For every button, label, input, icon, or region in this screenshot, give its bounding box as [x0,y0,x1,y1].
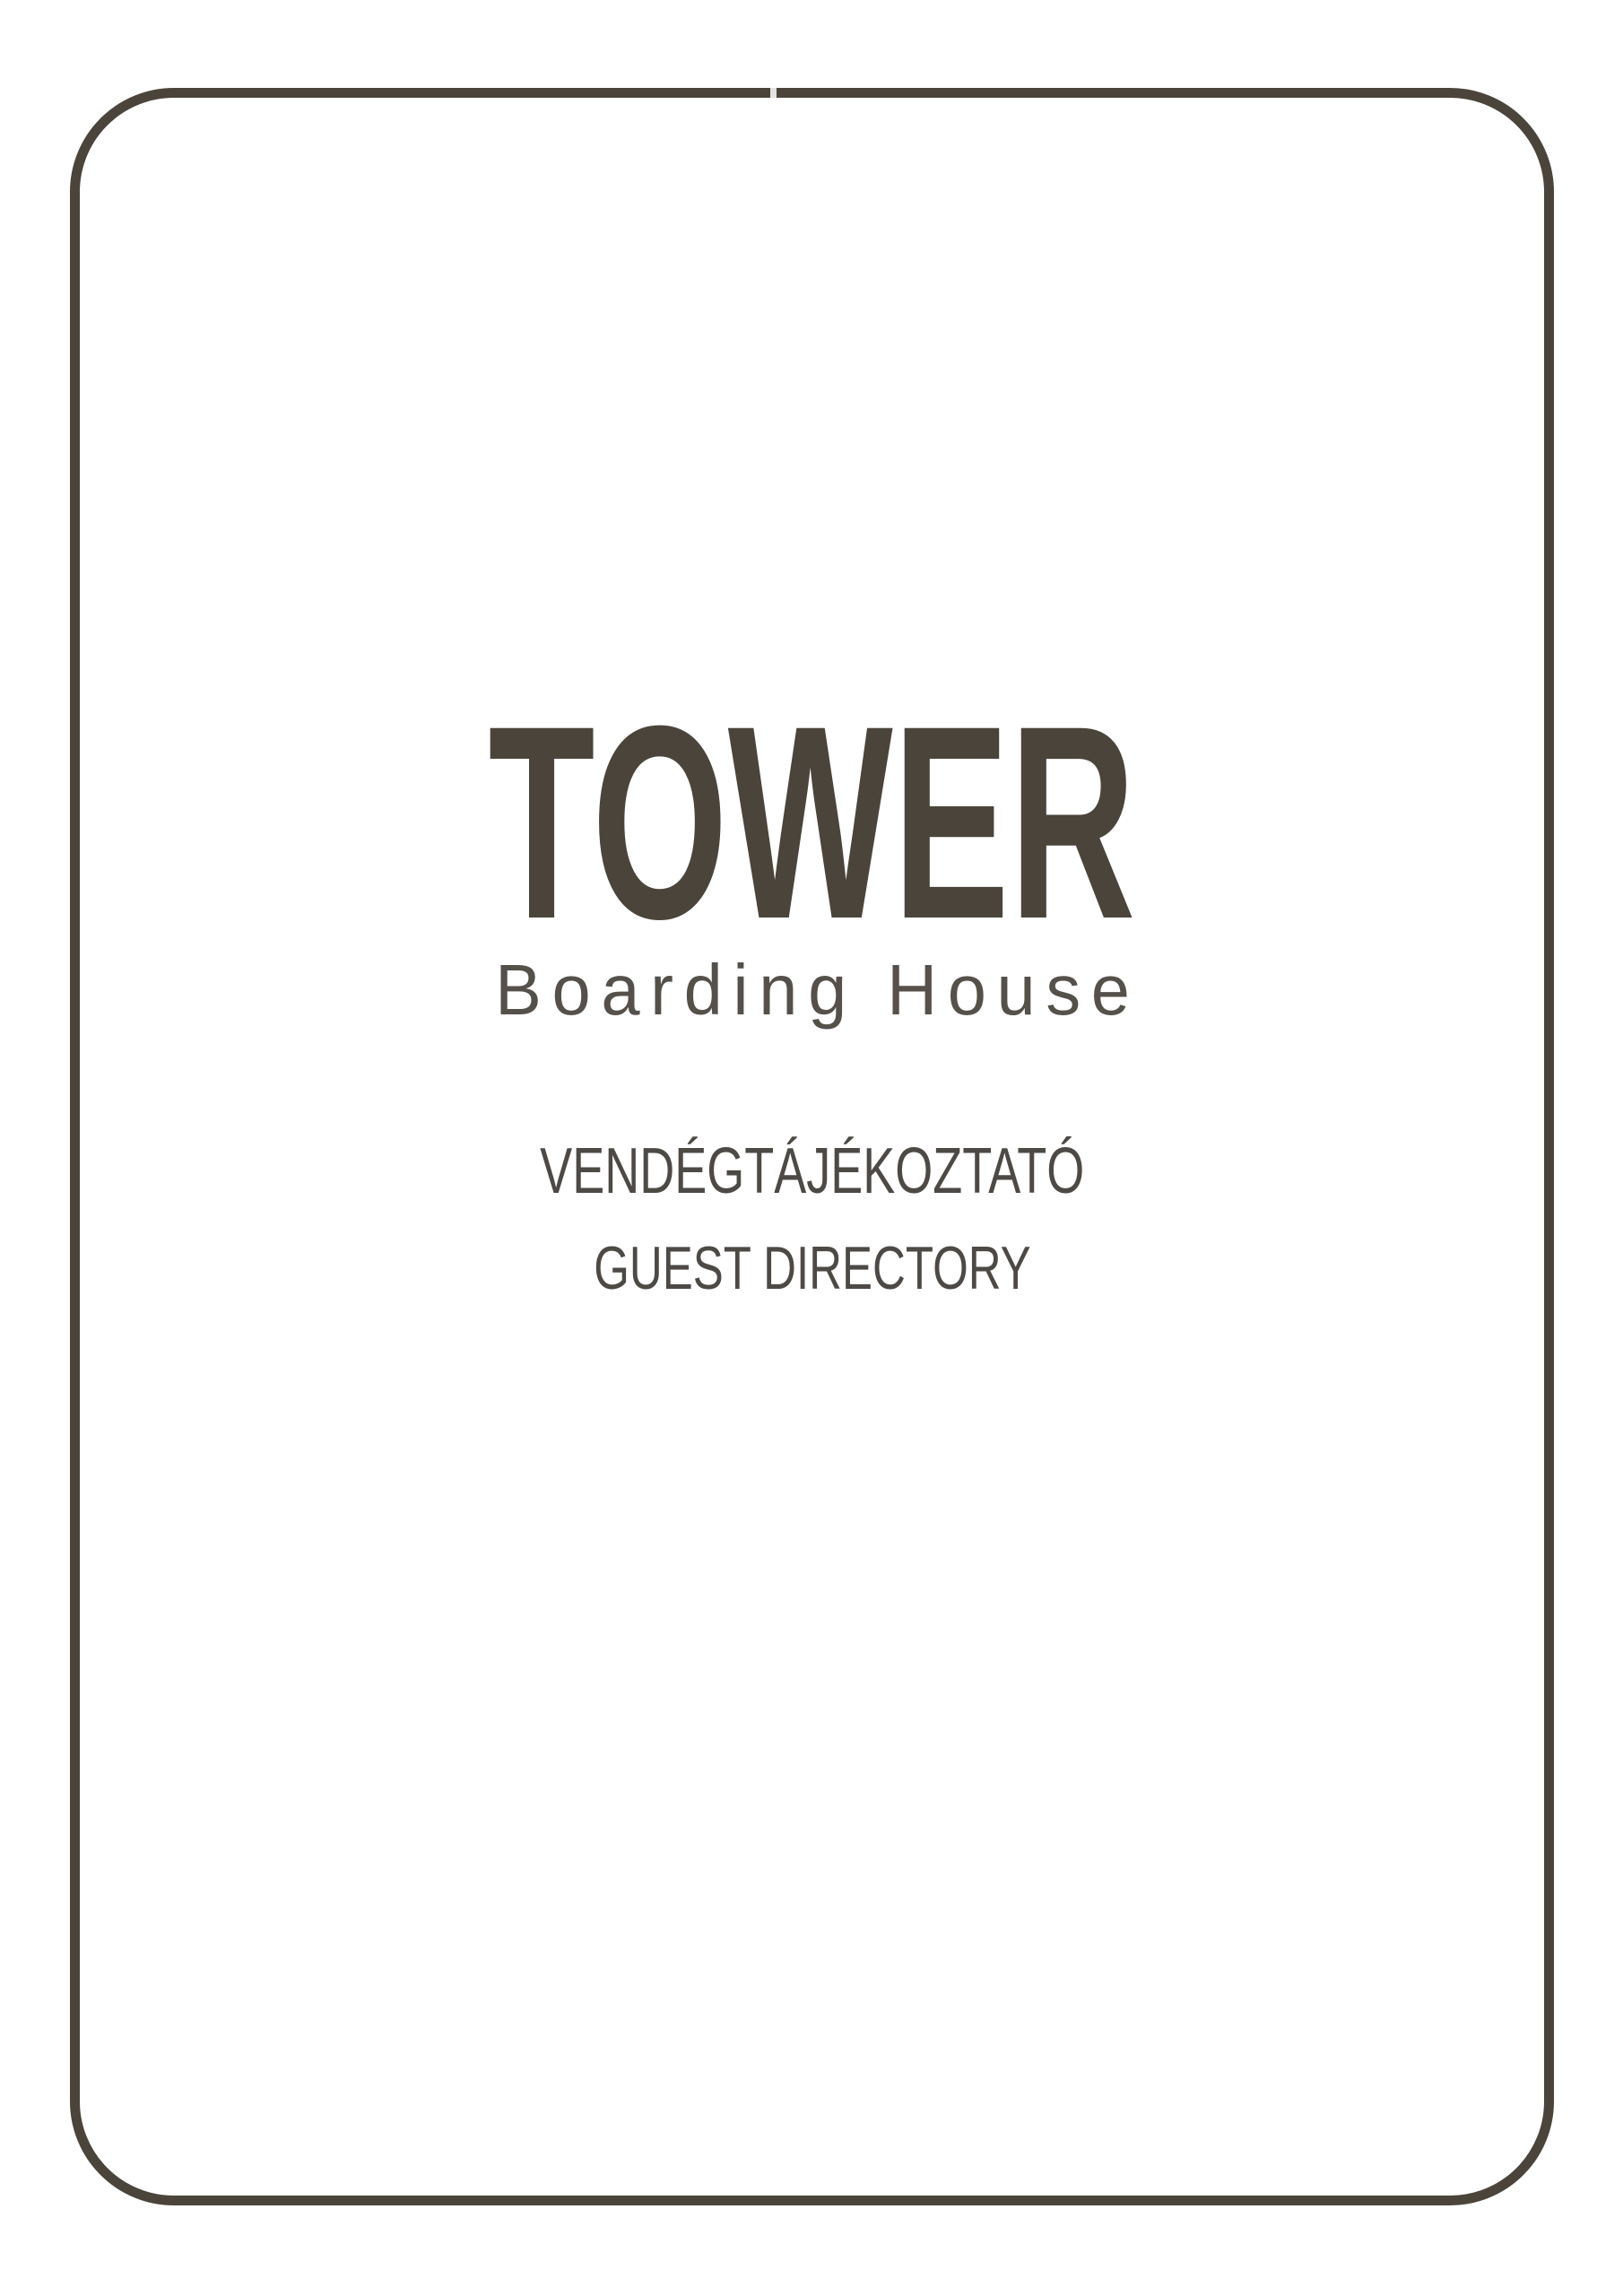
directory-title-english-text: GUEST DIRECTORY [594,1238,1030,1299]
hotel-logo-subtitle-text: Boarding House [495,954,1140,1026]
directory-title-english: GUEST DIRECTORY [70,1238,1554,1299]
hotel-logo-subtitle: Boarding House [70,954,1554,1026]
hotel-logo-title-text: TOWER [488,685,1135,961]
border-notch-artifact [770,87,777,100]
directory-title-hungarian-text: VENDÉGTÁJÉKOZTATÓ [540,1139,1084,1204]
directory-title-hungarian: VENDÉGTÁJÉKOZTATÓ [70,1139,1554,1204]
guest-directory-cover-page: TOWER Boarding House VENDÉGTÁJÉKOZTATÓ G… [0,0,1623,2296]
hotel-logo-title: TOWER [70,685,1554,961]
